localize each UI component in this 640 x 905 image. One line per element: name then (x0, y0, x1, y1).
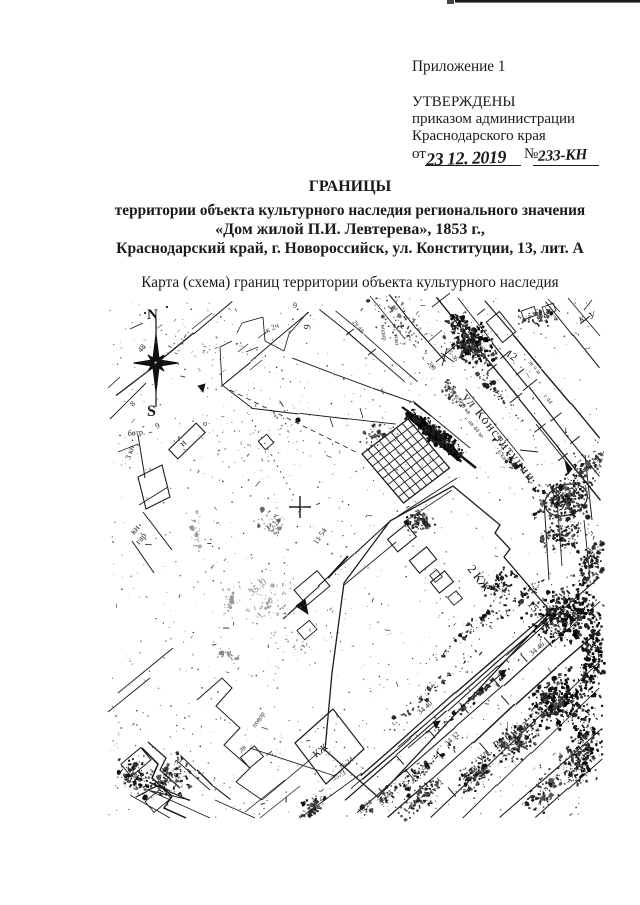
svg-text:N: N (147, 307, 158, 323)
svg-text:бвтр.: бвтр. (127, 427, 145, 438)
svg-text:зв ч м: зв ч м (526, 359, 542, 376)
svg-text:водор: водор (379, 324, 388, 341)
svg-text:12: 12 (503, 348, 519, 364)
svg-text:S: S (147, 403, 156, 420)
svg-text:к 2ч: к 2ч (264, 321, 280, 335)
svg-text:9: 9 (154, 421, 162, 431)
svg-text:34 32: 34 32 (442, 729, 461, 747)
svg-text:9: 9 (293, 301, 297, 310)
svg-text:дв: дв (237, 743, 248, 754)
svg-text:КЖ: КЖ (311, 742, 330, 760)
svg-text:3 кн: 3 кн (123, 444, 136, 461)
svg-text:11 54: 11 54 (311, 526, 329, 546)
svg-text:повор: повор (250, 710, 267, 729)
svg-text:208: 208 (425, 360, 437, 372)
svg-text:34 46: 34 46 (527, 639, 546, 657)
svg-text:о: о (203, 419, 207, 428)
svg-text:29 48: 29 48 (350, 319, 365, 335)
svg-text:8: 8 (128, 399, 137, 408)
svg-text:48: 48 (136, 342, 148, 354)
svg-text:т 44: т 44 (541, 393, 554, 407)
svg-text:ул Конституции: ул Конституции (460, 390, 540, 485)
svg-text:2 КЖ: 2 КЖ (465, 562, 494, 594)
svg-text:к. У: к. У (578, 310, 598, 325)
svg-text:9: 9 (302, 324, 314, 331)
